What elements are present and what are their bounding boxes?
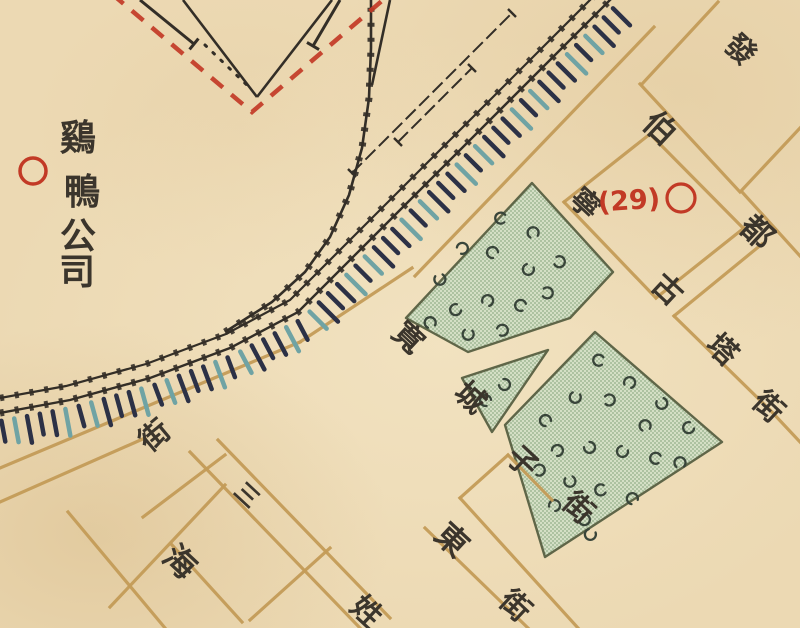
street-name-char: 街 bbox=[132, 414, 177, 459]
embankment-tick bbox=[402, 220, 421, 239]
street-name-char: 都 bbox=[732, 207, 781, 256]
embankment-tick bbox=[530, 91, 547, 108]
marker-29-label: (29) bbox=[597, 183, 661, 218]
embankment-tick bbox=[411, 211, 426, 226]
embankment-tick bbox=[438, 183, 453, 198]
embankment-tick bbox=[167, 380, 175, 402]
embankment-tick bbox=[549, 73, 564, 88]
railway-line bbox=[225, 0, 371, 332]
embankment-tick bbox=[448, 174, 465, 191]
yard-track bbox=[372, 0, 390, 85]
street-line bbox=[110, 485, 225, 607]
embankment-tick bbox=[65, 409, 70, 436]
embankment-tick bbox=[429, 192, 448, 211]
embankment-tick bbox=[356, 266, 371, 281]
street-line bbox=[143, 455, 225, 517]
boundary-dashed-line bbox=[112, 0, 390, 112]
street-grid bbox=[0, 2, 800, 628]
company-name-char: 鷄 bbox=[59, 118, 96, 158]
embankment-tick bbox=[337, 284, 354, 301]
historical-map-canvas: 鷄鴨公司發伯都寧古塔街寬城子街三姓東街海街(29) bbox=[0, 0, 800, 628]
street-name-char: 伯 bbox=[636, 104, 684, 152]
embankment-tick bbox=[475, 146, 492, 163]
embankment-tick bbox=[512, 109, 531, 128]
embankment-tick bbox=[503, 119, 520, 136]
embankment-tick bbox=[484, 137, 503, 156]
embankment-tick bbox=[14, 418, 18, 442]
embankment-tick bbox=[558, 63, 575, 80]
embankment-tick bbox=[203, 367, 211, 389]
embankment-tick bbox=[319, 302, 338, 321]
railway-siding bbox=[352, 13, 512, 173]
embankment-tick bbox=[613, 8, 630, 25]
embankment-tick bbox=[576, 45, 591, 60]
map-svg: 鷄鴨公司發伯都寧古塔街寬城子街三姓東街海街(29) bbox=[0, 0, 800, 628]
embankment-tick bbox=[585, 36, 602, 53]
street-line bbox=[190, 452, 360, 628]
railway-line-ties bbox=[225, 0, 371, 332]
embankment-tick bbox=[521, 100, 536, 115]
company-location-circle bbox=[20, 158, 46, 184]
embankment-tick bbox=[79, 406, 85, 426]
street-name-char: 姓 bbox=[344, 590, 388, 628]
embankment-tick bbox=[228, 357, 235, 377]
embankment-tick bbox=[40, 414, 44, 435]
yard-track bbox=[257, 0, 332, 97]
embankment-tick bbox=[595, 27, 614, 46]
embankment-tick bbox=[365, 257, 382, 274]
embankment-tick bbox=[457, 165, 476, 184]
railway-siding bbox=[398, 68, 472, 142]
street-name-char: 東 bbox=[428, 516, 476, 564]
company-name-char: 司 bbox=[59, 252, 95, 292]
street-line bbox=[642, 2, 718, 84]
street-line bbox=[0, 438, 145, 502]
embankment-tick bbox=[374, 247, 393, 266]
embankment-tick bbox=[116, 396, 122, 416]
embankment-tick bbox=[567, 54, 586, 73]
street-name-char: 街 bbox=[492, 583, 537, 628]
embankment-tick bbox=[493, 128, 508, 143]
marker-29-circle bbox=[667, 184, 695, 212]
street-name-char: 發 bbox=[717, 27, 762, 72]
embankment-tick bbox=[53, 411, 57, 435]
embankment-tick bbox=[383, 238, 398, 253]
embankment-tick bbox=[1, 421, 5, 442]
company-name-char: 鴨 bbox=[64, 172, 100, 212]
embankment-tick bbox=[91, 402, 97, 425]
embankment-tick bbox=[328, 293, 343, 308]
embankment-tick bbox=[392, 229, 409, 246]
street-name-char: 海 bbox=[156, 538, 204, 586]
embankment-tick bbox=[346, 275, 365, 294]
embankment-tick bbox=[27, 416, 32, 443]
street-name-char: 塔 bbox=[700, 328, 745, 373]
embankment-tick bbox=[466, 155, 481, 170]
street-line bbox=[742, 128, 800, 190]
embankment-tick bbox=[104, 399, 111, 425]
embankment-tick bbox=[298, 321, 308, 340]
embankment-tick bbox=[141, 389, 148, 415]
street-line bbox=[674, 244, 762, 316]
spur-track bbox=[140, 0, 194, 44]
embankment-tick bbox=[310, 312, 327, 329]
embankment-tick bbox=[420, 201, 437, 218]
dot-dash-line bbox=[205, 45, 250, 88]
map-labels: 鷄鴨公司發伯都寧古塔街寬城子街三姓東街海街(29) bbox=[20, 27, 790, 628]
embankment-tick bbox=[539, 82, 558, 101]
street-name-char: 古 bbox=[645, 268, 689, 313]
company-name-char: 公 bbox=[60, 216, 96, 256]
red-boundary bbox=[112, 0, 390, 112]
embankment-tick bbox=[604, 18, 619, 33]
street-line bbox=[68, 512, 165, 628]
